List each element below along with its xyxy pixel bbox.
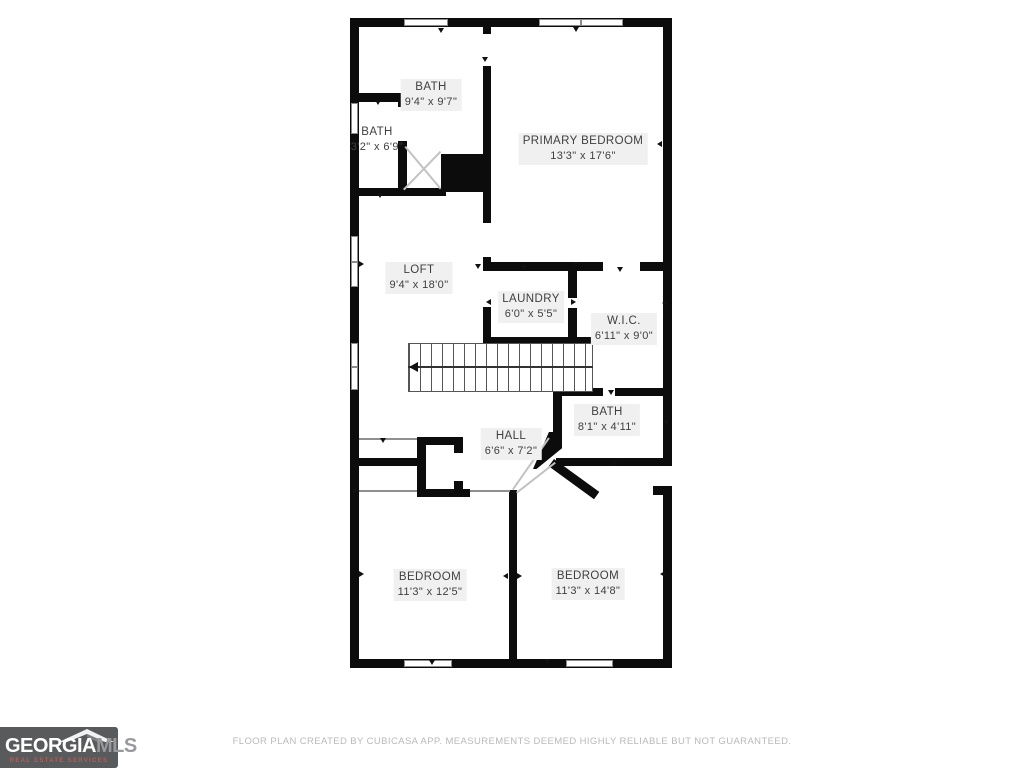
room-label-loft: LOFT 9'4" x 18'0" xyxy=(385,262,452,294)
wall-outer-top xyxy=(350,18,672,27)
room-dims: 9'4" x 9'7" xyxy=(405,95,458,110)
wall-laundry-top xyxy=(483,262,603,271)
tick-marker xyxy=(612,461,618,466)
room-label-bath-hall: BATH 8'1" x 4'11" xyxy=(574,404,640,436)
wall-wic-left-upper xyxy=(568,271,577,298)
room-label-primary-bedroom: PRIMARY BEDROOM 13'3" x 17'6" xyxy=(519,133,648,165)
tick-marker xyxy=(662,300,667,306)
room-name: BEDROOM xyxy=(398,570,463,585)
wall-closet-bottom xyxy=(417,489,470,497)
room-label-bath-top: BATH 9'4" x 9'7" xyxy=(401,79,462,111)
room-dims: 11'3" x 14'8" xyxy=(556,584,621,599)
room-dims: 8'1" x 4'11" xyxy=(578,420,636,435)
tick-marker xyxy=(571,299,576,305)
room-label-laundry: LAUNDRY 6'0" x 5'5" xyxy=(498,291,564,323)
tick-marker xyxy=(660,571,665,577)
room-label-wic: W.I.C. 6'11" x 9'0" xyxy=(591,313,657,345)
room-dims: 9'4" x 18'0" xyxy=(389,278,448,293)
opening-line xyxy=(470,490,510,492)
tick-marker xyxy=(380,438,386,443)
room-name: BATH xyxy=(578,405,636,420)
tick-marker xyxy=(573,27,579,32)
tick-marker xyxy=(353,488,358,494)
room-dims: 6'11" x 9'0" xyxy=(595,329,653,344)
wall-divider-below-box xyxy=(483,192,491,223)
staircase-direction-arrow-icon xyxy=(409,362,418,372)
room-name: W.I.C. xyxy=(595,314,653,329)
window-mullion xyxy=(351,261,358,263)
room-name: BATH xyxy=(351,125,404,140)
room-name: LOFT xyxy=(389,263,448,278)
tick-marker xyxy=(517,573,522,579)
wall-closet-left xyxy=(417,437,426,497)
tick-marker xyxy=(449,489,455,494)
wall-bath-primary-main xyxy=(483,66,491,192)
room-label-bedroom-right: BEDROOM 11'3" x 14'8" xyxy=(552,568,625,600)
room-dims: 3'2" x 6'9" xyxy=(351,140,404,155)
tick-marker xyxy=(359,261,364,267)
window xyxy=(404,660,452,667)
tick-marker xyxy=(375,100,381,105)
georgia-mls-logo: GEORGIAMLS REAL ESTATE SERVICES xyxy=(0,727,118,768)
wall-hallbath-left-stub xyxy=(553,396,562,434)
room-label-hall: HALL 6'6" x 7'2" xyxy=(481,428,542,460)
room-label-bath-small: BATH 3'2" x 6'9" xyxy=(347,124,408,156)
room-dims: 11'3" x 12'5" xyxy=(398,585,463,600)
wall-bedroom-divider xyxy=(509,490,517,667)
window xyxy=(404,19,448,26)
room-name: BATH xyxy=(405,80,458,95)
tick-marker xyxy=(608,390,614,395)
wall-wic-top-right xyxy=(640,262,672,271)
room-name: PRIMARY BEDROOM xyxy=(523,134,644,149)
wall-smallbath-bottom xyxy=(350,188,446,196)
disclaimer-text: FLOOR PLAN CREATED BY CUBICASA APP. MEAS… xyxy=(0,736,1024,747)
tick-marker xyxy=(482,57,488,62)
tick-marker xyxy=(544,659,550,664)
window-mullion xyxy=(351,366,358,368)
room-dims: 13'3" x 17'6" xyxy=(523,149,644,164)
tick-marker xyxy=(521,265,527,270)
wall-corner-stub xyxy=(653,486,672,495)
tick-marker xyxy=(503,573,508,579)
room-dims: 6'6" x 7'2" xyxy=(485,444,538,459)
tick-marker xyxy=(438,28,444,33)
window xyxy=(566,660,613,667)
room-label-bedroom-left: BEDROOM 11'3" x 12'5" xyxy=(394,569,467,601)
staircase-rail xyxy=(408,366,593,368)
logo-tagline: REAL ESTATE SERVICES xyxy=(0,758,118,764)
tick-marker xyxy=(359,571,364,577)
opening-line xyxy=(359,490,417,492)
wall-hall-left xyxy=(350,458,423,466)
tick-marker xyxy=(429,660,435,665)
wall-closet-right-a xyxy=(454,437,463,453)
wall-outer-right-lower xyxy=(663,486,672,668)
wall-chase-block xyxy=(441,154,483,192)
wall-outer-right-upper xyxy=(663,18,672,466)
room-name: BEDROOM xyxy=(556,569,621,584)
tick-marker xyxy=(657,141,662,147)
window-mullion xyxy=(580,19,582,26)
opening-line xyxy=(359,438,417,440)
tick-marker xyxy=(377,193,383,198)
room-name: HALL xyxy=(485,429,538,444)
room-dims: 6'0" x 5'5" xyxy=(502,307,560,322)
tick-marker xyxy=(475,264,481,269)
tick-marker xyxy=(663,419,668,425)
floor-plan-page: BATH 9'4" x 9'7" BATH 3'2" x 6'9" PRIMAR… xyxy=(0,0,1024,768)
room-name: LAUNDRY xyxy=(502,292,560,307)
tick-marker xyxy=(573,262,579,267)
wall-hallbath-top-right xyxy=(615,388,672,396)
wall-bath-primary-stub xyxy=(483,27,491,34)
tick-marker xyxy=(486,299,491,305)
tick-marker xyxy=(617,267,623,272)
